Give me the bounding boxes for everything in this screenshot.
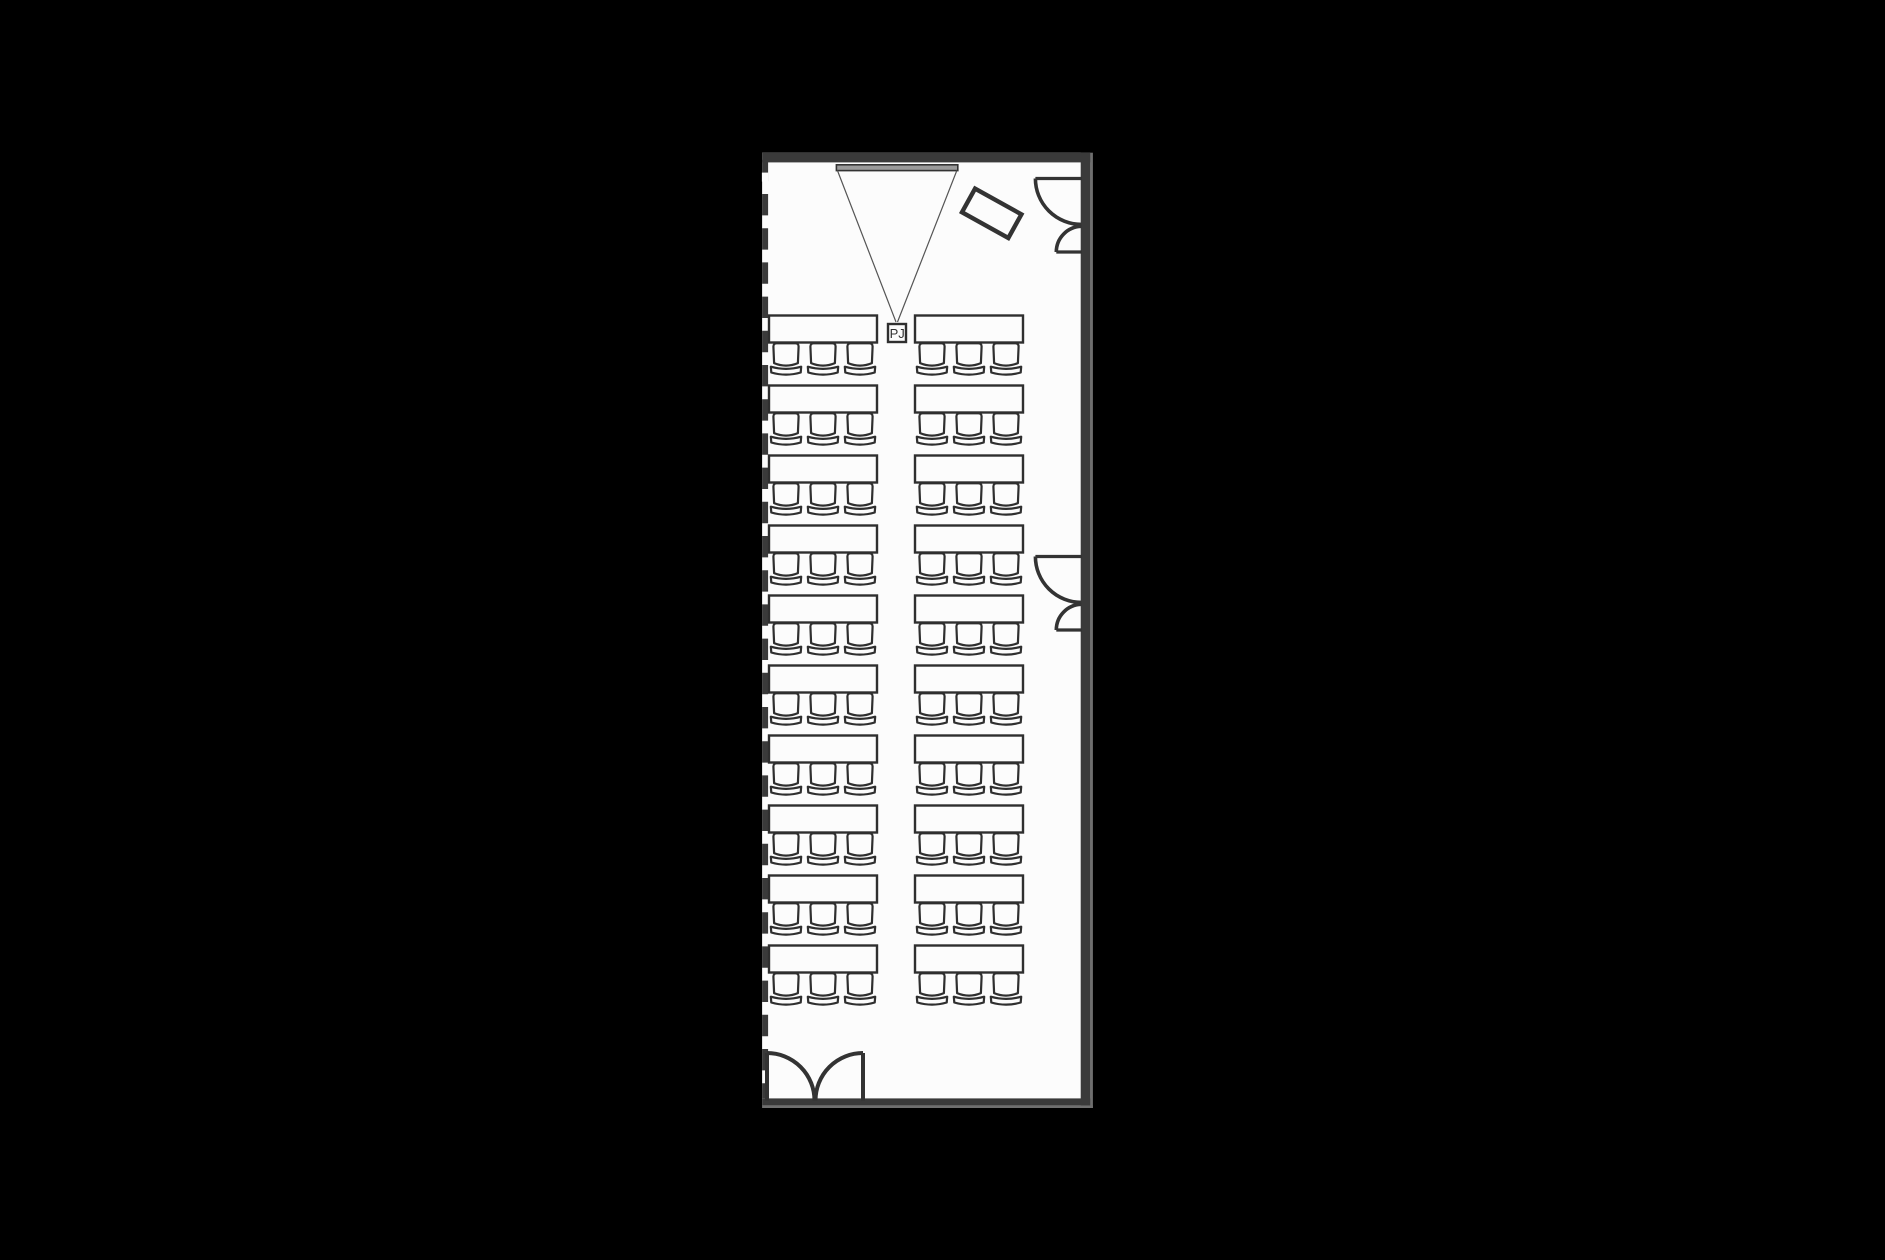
svg-text:PJ: PJ [890, 326, 905, 341]
